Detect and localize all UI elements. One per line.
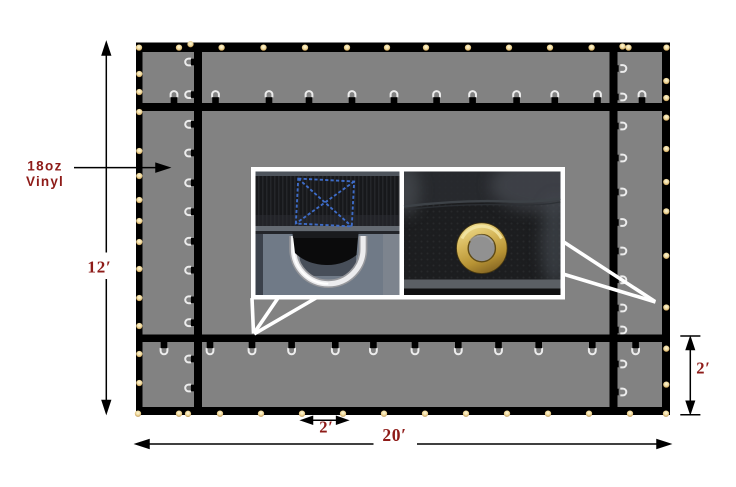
svg-text:18oz: 18oz — [27, 159, 63, 174]
svg-text:2′: 2′ — [696, 359, 711, 378]
svg-text:20′: 20′ — [382, 425, 406, 445]
svg-text:Vinyl: Vinyl — [26, 174, 64, 189]
svg-text:2′: 2′ — [319, 418, 334, 437]
svg-text:12′: 12′ — [87, 258, 111, 277]
